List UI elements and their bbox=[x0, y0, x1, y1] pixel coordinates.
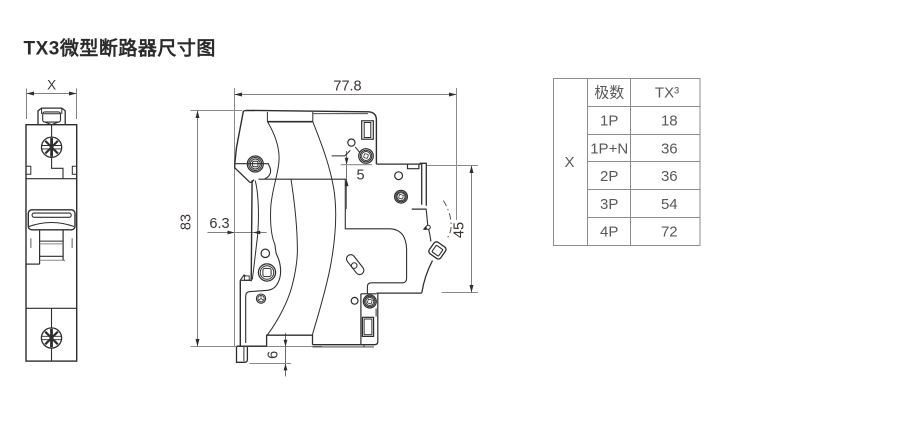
svg-text:X: X bbox=[564, 154, 574, 171]
svg-text:18: 18 bbox=[661, 113, 678, 130]
svg-text:TX3微型断路器尺寸图: TX3微型断路器尺寸图 bbox=[24, 37, 216, 60]
svg-text:45: 45 bbox=[452, 222, 468, 238]
svg-text:72: 72 bbox=[661, 224, 678, 241]
svg-text:5: 5 bbox=[356, 168, 364, 184]
svg-text:1P+N: 1P+N bbox=[590, 140, 628, 157]
svg-text:1P: 1P bbox=[600, 113, 618, 130]
svg-text:36: 36 bbox=[661, 168, 678, 185]
svg-text:36: 36 bbox=[661, 140, 678, 157]
svg-text:TX³: TX³ bbox=[655, 85, 679, 102]
svg-text:极数: 极数 bbox=[594, 85, 624, 102]
svg-text:6: 6 bbox=[266, 351, 282, 359]
svg-text:X: X bbox=[47, 77, 56, 92]
svg-text:2P: 2P bbox=[600, 168, 618, 185]
svg-text:6.3: 6.3 bbox=[209, 216, 229, 232]
svg-text:77.8: 77.8 bbox=[333, 78, 361, 94]
svg-text:4P: 4P bbox=[600, 224, 618, 241]
svg-text:3P: 3P bbox=[600, 196, 618, 213]
svg-text:83: 83 bbox=[179, 214, 195, 230]
svg-text:54: 54 bbox=[661, 196, 678, 213]
